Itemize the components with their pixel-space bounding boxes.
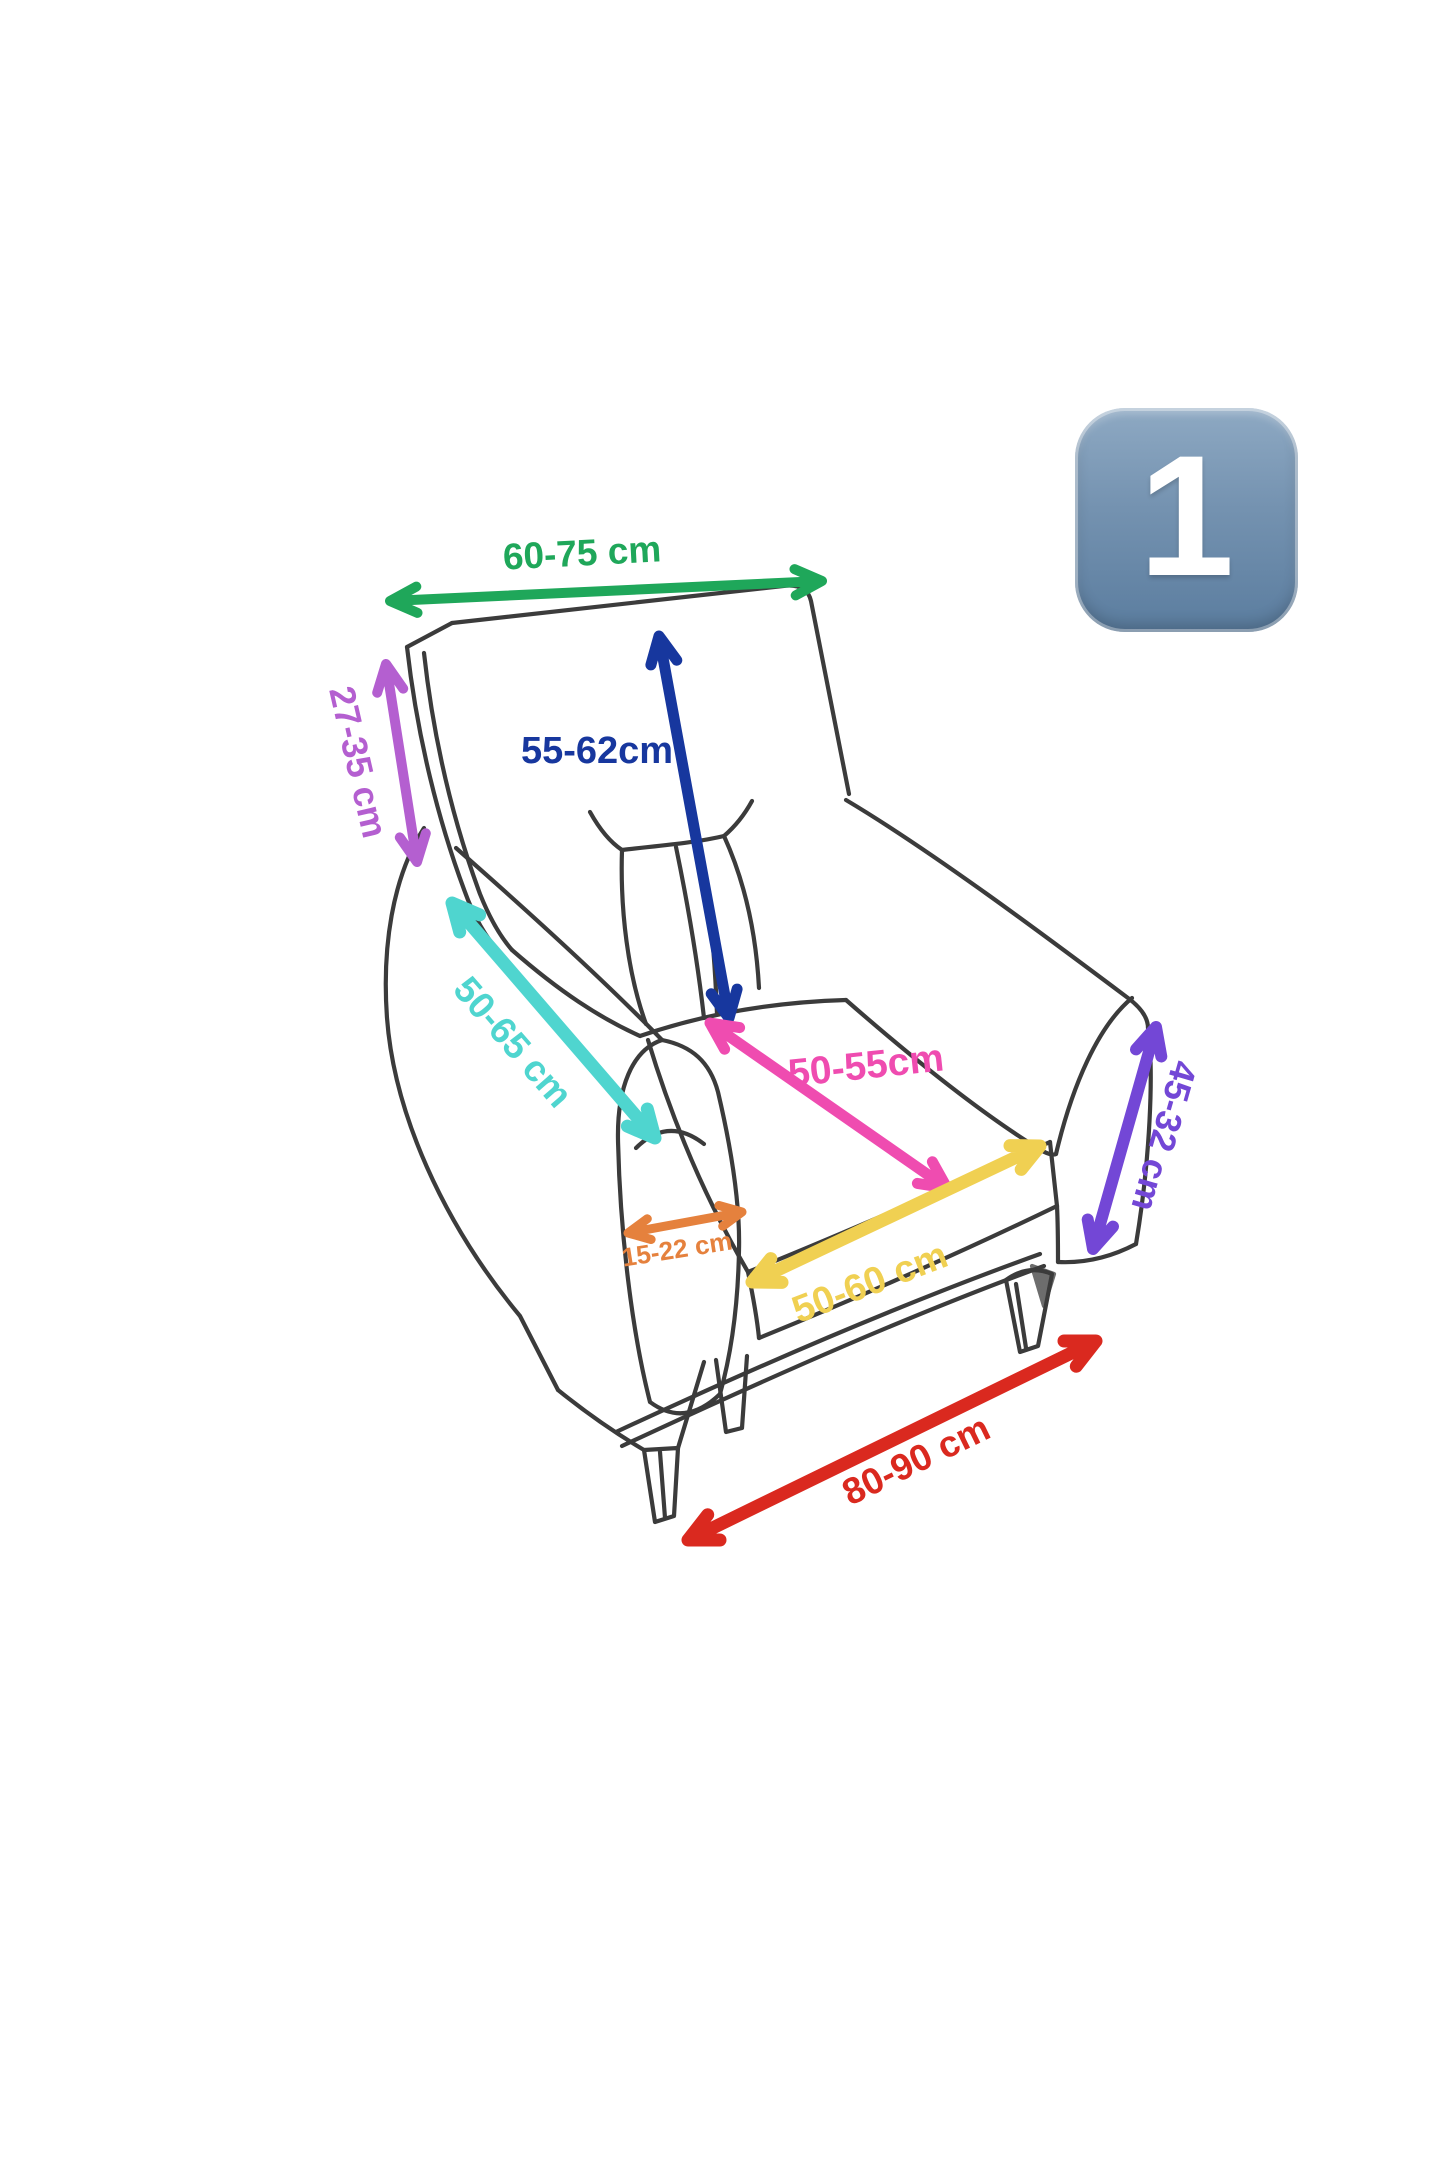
front-right-leg-shade <box>1032 1266 1054 1306</box>
pillow-right-side <box>724 836 759 988</box>
diagram-canvas <box>0 0 1440 2160</box>
pillow-left-horn <box>590 812 622 850</box>
arrow-back-height <box>651 636 737 1018</box>
label-back-width: 60-75 cm <box>502 530 662 575</box>
keycap-1-number: 1 <box>1139 417 1235 615</box>
front-left-leg <box>644 1448 678 1522</box>
keycap-1-badge: 1 <box>1075 408 1298 632</box>
pillow-left-side <box>622 850 646 1024</box>
dimension-arrows <box>377 569 1161 1540</box>
armchair-size-diagram: 60-75 cm 27-35 cm 55-62cm 50-65 cm 50-55… <box>0 0 1440 2160</box>
right-arm-top-edge <box>846 800 1148 1028</box>
base-right-edge <box>1057 1206 1058 1262</box>
pillow-right-horn <box>724 801 752 836</box>
pillow-top-edge <box>622 836 724 850</box>
left-arm-base-right <box>678 1362 704 1448</box>
label-back-height: 55-62cm <box>521 732 673 770</box>
backrest-left-corner <box>407 623 452 647</box>
